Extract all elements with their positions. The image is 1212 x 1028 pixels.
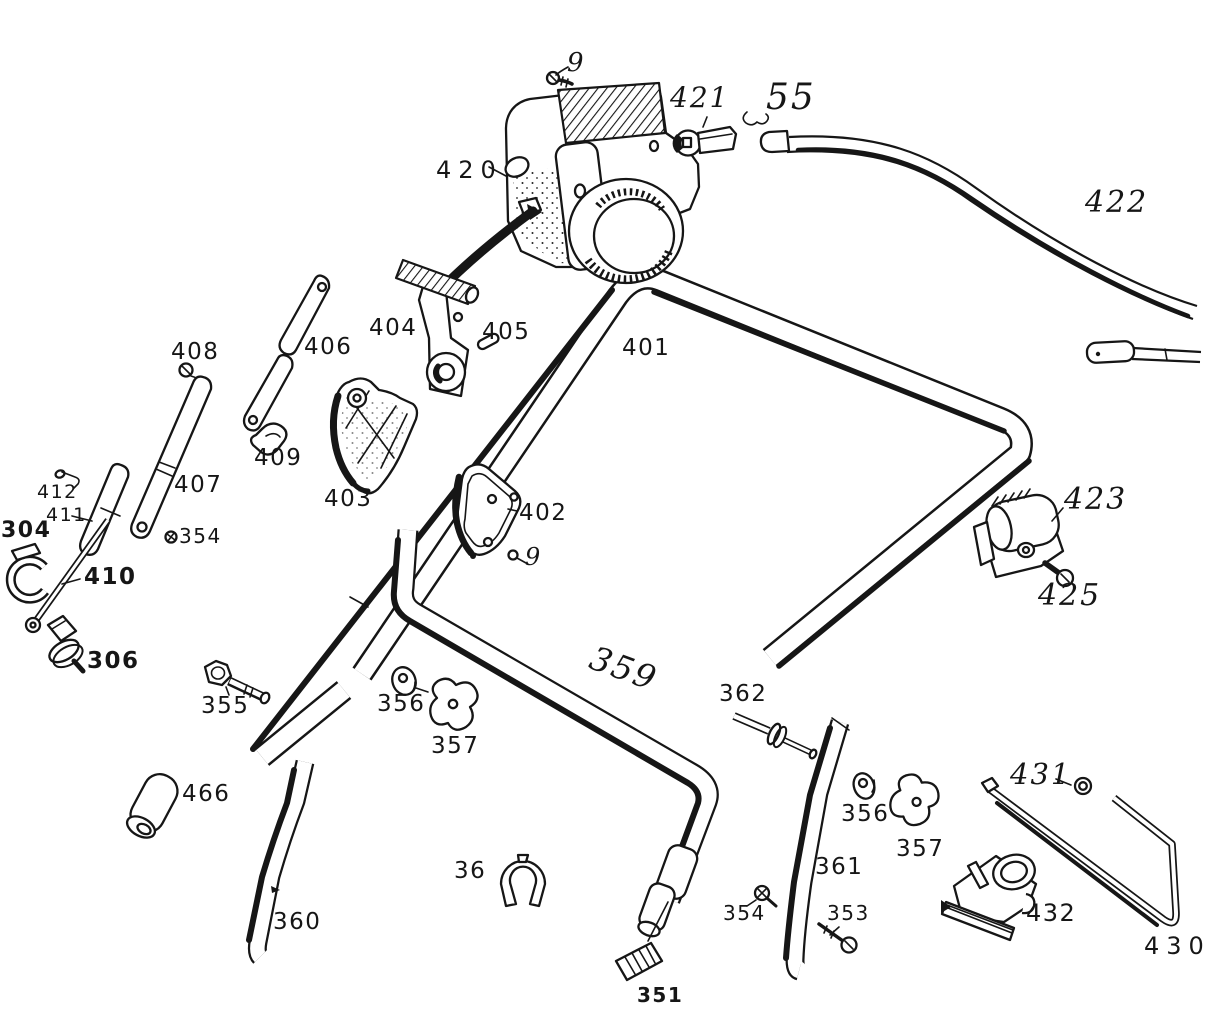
part-label-55: 55 xyxy=(766,80,816,116)
part-label-407: 407 xyxy=(174,474,222,497)
part-label-403: 403 xyxy=(324,488,372,511)
part-label-430: 430 xyxy=(1144,934,1211,958)
part-label-466: 466 xyxy=(182,783,230,806)
part-label-425: 425 xyxy=(1038,581,1101,611)
part-label-406: 406 xyxy=(304,336,352,359)
part-label-357-left: 357 xyxy=(431,735,479,758)
grip-sleeves-shape xyxy=(636,842,700,938)
nut-356-right-shape xyxy=(850,770,878,801)
part-label-404: 404 xyxy=(369,317,417,340)
part-label-361: 361 xyxy=(815,856,863,879)
cable-422-shape xyxy=(743,112,1201,363)
part-label-9-top: 9 xyxy=(567,50,586,76)
part-label-420: 420 xyxy=(436,158,503,182)
knob-357-left-shape xyxy=(430,679,477,730)
part-label-353: 353 xyxy=(827,903,870,923)
part-label-357-right: 357 xyxy=(896,838,944,861)
part-label-412: 412 xyxy=(37,483,78,502)
part-label-356-left: 356 xyxy=(377,693,425,716)
lever-421-shape xyxy=(673,117,736,156)
bracket-432-shape xyxy=(941,850,1039,940)
part-label-411: 411 xyxy=(46,506,87,525)
parts-diagram-page: 9 421 55 420 422 408 406 404 405 401 409… xyxy=(0,0,1212,1028)
clip-36-shape xyxy=(501,855,545,906)
part-label-354-left: 354 xyxy=(179,526,222,546)
part-label-409: 409 xyxy=(254,447,302,470)
part-label-402: 402 xyxy=(519,502,567,525)
strip-407-shape xyxy=(131,377,211,538)
part-label-422: 422 xyxy=(1085,188,1148,218)
diagram-line-art xyxy=(0,0,1212,1028)
part-label-351: 351 xyxy=(637,985,683,1005)
part-label-354-bottom: 354 xyxy=(723,903,766,923)
part-label-431: 431 xyxy=(1010,760,1071,789)
part-label-9-mid: 9 xyxy=(525,545,542,569)
part-label-401: 401 xyxy=(622,337,670,360)
part-label-408: 408 xyxy=(171,341,219,364)
nut-431-shape xyxy=(1075,778,1091,794)
plate-402-shape xyxy=(455,464,520,559)
part-label-306: 306 xyxy=(87,650,140,673)
part-label-362: 362 xyxy=(719,683,767,706)
part-label-360: 360 xyxy=(273,911,321,934)
part-label-405: 405 xyxy=(482,321,530,344)
part-label-36: 36 xyxy=(454,860,486,883)
part-label-304: 304 xyxy=(1,520,51,542)
part-label-355: 355 xyxy=(201,695,249,718)
tube-361-shape xyxy=(786,718,849,971)
part-label-356-right: 356 xyxy=(841,803,889,826)
part-label-432: 432 xyxy=(1026,901,1076,925)
part-label-410: 410 xyxy=(84,566,137,589)
pin-362-shape xyxy=(734,716,818,759)
screw-9-mid-shape xyxy=(509,551,527,564)
guard-403-shape xyxy=(333,379,417,494)
part-label-423: 423 xyxy=(1064,485,1127,515)
cylinder-466-shape xyxy=(124,769,184,842)
part-label-421: 421 xyxy=(670,84,729,112)
knob-357-right-shape xyxy=(886,770,943,830)
